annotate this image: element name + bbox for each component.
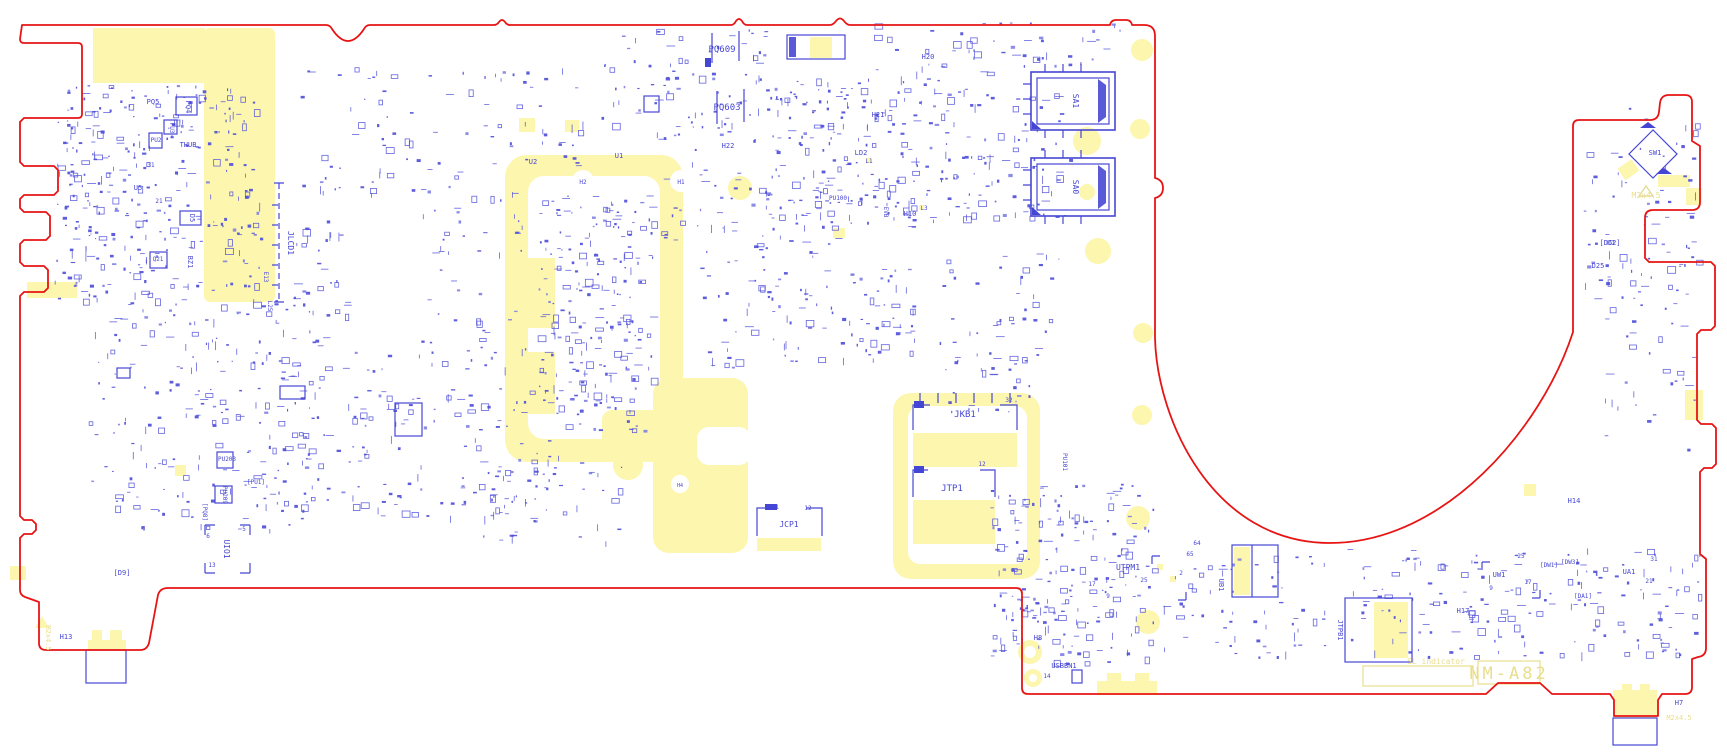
- silkscreen-mark: [822, 226, 825, 229]
- silkscreen-mark: [861, 89, 868, 95]
- ref-designator: SA0: [1071, 180, 1080, 195]
- silkscreen-mark: [527, 479, 531, 481]
- silkscreen-mark: [772, 176, 773, 179]
- silkscreen-mark: [420, 488, 422, 490]
- silkscreen-mark: [1444, 601, 1447, 604]
- silkscreen-mark: [911, 199, 915, 204]
- silkscreen-mark: [303, 229, 311, 236]
- silkscreen-mark: [1137, 595, 1141, 597]
- silkscreen-mark: [500, 199, 502, 202]
- silkscreen-mark: [1037, 621, 1039, 623]
- silkscreen-mark: [223, 469, 227, 470]
- silkscreen-mark: [1574, 641, 1575, 643]
- silkscreen-mark: [205, 319, 209, 320]
- silkscreen-mark: [1478, 629, 1486, 636]
- silkscreen-mark: [548, 440, 552, 441]
- silkscreen-mark: [1054, 65, 1056, 68]
- silkscreen-mark: [964, 217, 972, 223]
- silkscreen-mark: [191, 241, 194, 248]
- silkscreen-mark: [493, 496, 495, 498]
- silkscreen-mark: [860, 339, 863, 342]
- silkscreen-mark: [84, 174, 86, 176]
- silkscreen-mark: [101, 265, 104, 271]
- silkscreen-mark: [244, 164, 247, 166]
- silkscreen-mark: [890, 275, 893, 277]
- silkscreen-mark: [186, 204, 189, 206]
- silkscreen-mark: [553, 303, 555, 304]
- silkscreen-mark: [692, 73, 694, 75]
- silkscreen-mark: [1065, 600, 1068, 604]
- ref-designator: UIO1: [222, 539, 231, 558]
- silkscreen-mark: [766, 89, 770, 91]
- silkscreen-mark: [1063, 634, 1065, 636]
- silkscreen-mark: [1036, 354, 1039, 356]
- silkscreen-mark: [1008, 411, 1009, 412]
- ref-designator: H20: [922, 53, 935, 61]
- silkscreen-mark: [226, 284, 227, 287]
- silkscreen-mark: [998, 134, 1004, 141]
- silkscreen-mark: [868, 354, 871, 355]
- silkscreen-mark: [503, 71, 506, 74]
- ref-designator: E13: [262, 272, 269, 283]
- silkscreen-mark: [309, 407, 310, 408]
- silkscreen-mark: [1623, 630, 1626, 633]
- silkscreen-mark: [851, 274, 855, 276]
- silkscreen-mark: [258, 267, 260, 269]
- silkscreen-mark: [617, 293, 619, 295]
- silkscreen-mark: [236, 312, 240, 314]
- silkscreen-mark: [391, 75, 398, 79]
- silkscreen-mark: [628, 331, 630, 333]
- silkscreen-mark: [1121, 484, 1124, 486]
- silkscreen-mark: [809, 251, 812, 254]
- silkscreen-mark: [206, 394, 213, 398]
- silkscreen-mark: [884, 304, 886, 306]
- ref-designator: H8: [1034, 634, 1042, 642]
- silkscreen-mark: [1222, 565, 1226, 566]
- silkscreen-mark: [1013, 148, 1018, 152]
- silkscreen-mark: [618, 226, 619, 228]
- silkscreen-mark: [1096, 620, 1100, 622]
- silkscreen-mark: [797, 81, 799, 82]
- silkscreen-mark: [816, 303, 817, 306]
- silkscreen-mark: [1595, 620, 1599, 626]
- silkscreen-mark: [1521, 635, 1524, 638]
- ref-designator: 5: [242, 526, 246, 533]
- silkscreen-mark: [432, 351, 434, 353]
- silkscreen-mark: [245, 196, 249, 199]
- silkscreen-mark: [941, 170, 943, 173]
- silkscreen-mark: [72, 147, 74, 149]
- silkscreen-mark: [1043, 612, 1047, 614]
- silkscreen-mark: [727, 261, 730, 263]
- silkscreen-mark: [62, 272, 65, 274]
- silkscreen-mark: [978, 195, 981, 196]
- silkscreen-mark: [252, 233, 255, 234]
- silkscreen-mark: [223, 419, 228, 424]
- silkscreen-mark: [822, 149, 824, 152]
- silkscreen-mark: [563, 512, 567, 515]
- silkscreen-mark: [556, 397, 558, 400]
- ref-designator: 12: [978, 461, 986, 468]
- silkscreen-mark: [138, 264, 140, 265]
- ref-designator: PU203: [218, 456, 236, 463]
- silkscreen-mark: [1484, 604, 1488, 605]
- silkscreen-mark: [1144, 527, 1146, 530]
- silkscreen-mark: [926, 193, 927, 196]
- silkscreen-mark: [227, 88, 228, 91]
- silkscreen-mark: [1146, 566, 1150, 567]
- silkscreen-mark: [465, 132, 468, 135]
- silkscreen-mark: [997, 180, 999, 183]
- silkscreen-mark: [1532, 592, 1535, 593]
- silkscreen-mark: [1013, 386, 1017, 389]
- silkscreen-mark: [304, 493, 307, 495]
- silkscreen-mark: [724, 123, 726, 125]
- silkscreen-mark: [600, 402, 602, 404]
- ref-designator: JTP1: [941, 484, 963, 494]
- silkscreen-mark: [649, 218, 650, 221]
- silkscreen-mark: [327, 314, 331, 317]
- silkscreen-mark: [58, 122, 60, 123]
- silkscreen-mark: [198, 147, 201, 149]
- silkscreen-mark: [1653, 414, 1657, 415]
- silkscreen-mark: [600, 308, 604, 309]
- silkscreen-mark: [873, 195, 876, 198]
- silkscreen-mark: [664, 237, 668, 239]
- silkscreen-mark: [402, 511, 410, 517]
- silkscreen-mark: [1149, 640, 1153, 646]
- silkscreen-mark: [1112, 23, 1116, 25]
- silkscreen-mark: [1638, 291, 1641, 293]
- silkscreen-mark: [706, 251, 707, 253]
- silkscreen-mark: [93, 295, 96, 297]
- silkscreen-mark: [560, 231, 562, 233]
- silkscreen-mark: [1584, 210, 1587, 211]
- silkscreen-mark: [574, 395, 578, 397]
- silkscreen-mark: [594, 254, 598, 257]
- silkscreen-mark: [593, 428, 596, 431]
- ref-designator: 64: [1193, 540, 1201, 547]
- silkscreen-mark: [638, 109, 641, 112]
- silkscreen-mark: [282, 358, 289, 364]
- silkscreen-mark: [232, 361, 233, 362]
- silkscreen-mark: [596, 258, 600, 259]
- silkscreen-mark: [895, 49, 899, 51]
- silkscreen-mark: [1592, 229, 1596, 232]
- silkscreen-mark: [856, 162, 858, 163]
- silkscreen-mark: [984, 138, 986, 141]
- silkscreen-mark: [752, 330, 759, 335]
- silkscreen-mark: [1593, 176, 1597, 179]
- silkscreen-mark: [132, 324, 136, 328]
- silkscreen-mark: [582, 489, 585, 490]
- silkscreen-mark: [274, 303, 278, 305]
- ref-designator: H22: [722, 142, 735, 150]
- silkscreen-mark: [516, 401, 517, 404]
- silkscreen-mark: [1238, 558, 1242, 560]
- silkscreen-mark: [396, 404, 399, 409]
- silkscreen-mark: [618, 324, 622, 326]
- silkscreen-mark: [771, 298, 773, 301]
- silkscreen-mark: [1032, 503, 1034, 506]
- silkscreen-mark: [1072, 646, 1073, 647]
- silkscreen-mark: [607, 407, 611, 409]
- silkscreen-mark: [1662, 243, 1665, 245]
- silkscreen-mark: [1000, 594, 1002, 597]
- silkscreen-mark: [802, 103, 806, 105]
- silkscreen-mark: [130, 302, 134, 304]
- silkscreen-mark: [593, 226, 595, 227]
- silkscreen-mark: [345, 314, 348, 320]
- silkscreen-mark: [278, 470, 279, 471]
- silkscreen-mark: [58, 166, 66, 170]
- silkscreen-mark: [602, 490, 604, 491]
- silkscreen-mark: [278, 492, 279, 495]
- silkscreen-mark: [190, 126, 192, 127]
- silkscreen-mark: [98, 382, 100, 384]
- silkscreen-mark: [812, 112, 814, 114]
- silkscreen-mark: [805, 298, 808, 300]
- ref-designator: JCP1: [779, 520, 798, 529]
- silkscreen-mark: [1688, 248, 1690, 249]
- silkscreen-mark: [281, 510, 284, 512]
- silkscreen-mark: [112, 387, 116, 388]
- silkscreen-mark: [1281, 587, 1283, 588]
- silkscreen-mark: [572, 261, 575, 264]
- silkscreen-mark: [858, 175, 859, 177]
- silkscreen-mark: [367, 369, 370, 370]
- silkscreen-mark: [524, 401, 526, 404]
- silkscreen-mark: [1400, 620, 1401, 623]
- silkscreen-mark: [559, 485, 563, 486]
- silkscreen-mark: [928, 64, 929, 66]
- silkscreen-mark: [131, 443, 134, 444]
- silkscreen-mark: [247, 452, 249, 453]
- silkscreen-mark: [911, 325, 913, 327]
- silkscreen-mark: [933, 105, 936, 107]
- silkscreen-mark: [1069, 64, 1073, 67]
- silkscreen-mark: [1126, 552, 1133, 559]
- silkscreen-mark: [695, 149, 697, 151]
- ref-designator: H17: [1457, 607, 1470, 615]
- silkscreen-mark: [902, 142, 908, 147]
- silkscreen-mark: [672, 214, 674, 217]
- silkscreen-mark: [113, 238, 116, 241]
- ref-designator: 31: [147, 162, 155, 169]
- silkscreen-mark: [118, 424, 120, 426]
- ref-designator: 9: [1106, 593, 1110, 600]
- silkscreen-mark: [151, 270, 155, 272]
- silkscreen-mark: [615, 88, 617, 91]
- silkscreen-mark: [360, 186, 364, 188]
- silkscreen-mark: [1069, 589, 1071, 591]
- silkscreen-mark: [71, 164, 74, 165]
- silkscreen-mark: [213, 406, 216, 408]
- silkscreen-mark: [575, 162, 579, 164]
- silkscreen-mark: [513, 73, 515, 76]
- silkscreen-mark: [1230, 645, 1232, 647]
- silkscreen-mark: [551, 201, 554, 202]
- silkscreen-mark: [110, 110, 112, 113]
- silkscreen-mark: [90, 233, 91, 234]
- silkscreen-mark: [337, 450, 341, 452]
- silkscreen-mark: [1033, 302, 1039, 307]
- silkscreen-mark: [113, 432, 115, 433]
- silkscreen-mark: [99, 107, 101, 110]
- silkscreen-mark: [1584, 603, 1586, 606]
- silkscreen-mark: [977, 104, 981, 106]
- silkscreen-mark: [1494, 640, 1495, 643]
- silkscreen-mark: [599, 429, 603, 431]
- silkscreen-mark: [898, 91, 900, 94]
- silkscreen-mark: [540, 241, 542, 243]
- silkscreen-mark: [627, 48, 630, 49]
- silkscreen-mark: [1001, 52, 1005, 53]
- silkscreen-mark: [1059, 521, 1063, 525]
- silkscreen-mark: [123, 179, 126, 182]
- silkscreen-mark: [111, 350, 115, 354]
- silkscreen-mark: [596, 223, 598, 225]
- silkscreen-mark: [364, 454, 367, 456]
- silkscreen-mark: [79, 142, 83, 144]
- silkscreen-mark: [155, 391, 159, 394]
- silkscreen-mark: [1075, 527, 1077, 528]
- silkscreen-mark: [1635, 404, 1636, 406]
- silkscreen-mark: [1033, 598, 1036, 601]
- silkscreen-mark: [994, 604, 996, 607]
- silkscreen-mark: [841, 116, 844, 119]
- silkscreen-mark: [862, 106, 866, 108]
- silkscreen-mark: [1631, 281, 1636, 286]
- ref-designator: UW1: [1493, 571, 1506, 579]
- silkscreen-mark: [875, 35, 883, 40]
- silkscreen-mark: [1606, 264, 1609, 267]
- silkscreen-mark: [1068, 651, 1072, 654]
- silkscreen-mark: [1054, 619, 1057, 621]
- silkscreen-mark: [551, 354, 554, 357]
- ref-designator: UTPM1: [1116, 563, 1140, 572]
- silkscreen-mark: [1153, 621, 1154, 624]
- silkscreen-mark: [828, 243, 831, 245]
- silkscreen-mark: [967, 42, 972, 49]
- silkscreen-mark: [902, 156, 903, 158]
- silkscreen-mark: [1675, 380, 1678, 381]
- silkscreen-mark: [603, 365, 605, 367]
- silkscreen-mark: [294, 297, 296, 299]
- silkscreen-mark: [170, 389, 172, 392]
- silkscreen-mark: [510, 142, 512, 145]
- silkscreen-mark: [913, 219, 917, 221]
- silkscreen-mark: [1537, 612, 1543, 617]
- silkscreen-mark: [327, 499, 329, 501]
- silkscreen-mark: [191, 516, 194, 518]
- silkscreen-mark: [1692, 158, 1696, 160]
- silkscreen-mark: [320, 181, 324, 183]
- silkscreen-mark: [1626, 335, 1628, 337]
- silkscreen-mark: [1596, 625, 1599, 627]
- silkscreen-mark: [525, 159, 528, 161]
- silkscreen-mark: [1013, 630, 1017, 631]
- silkscreen-mark: [806, 102, 807, 104]
- silkscreen-mark: [572, 369, 576, 370]
- silkscreen-mark: [844, 157, 847, 161]
- silkscreen-mark: [1017, 395, 1021, 397]
- silkscreen-mark: [749, 29, 750, 31]
- silkscreen-mark: [762, 235, 763, 237]
- label-frame: [1363, 666, 1473, 686]
- silkscreen-mark: [745, 74, 747, 76]
- silkscreen-mark: [1082, 485, 1085, 487]
- silkscreen-mark: [226, 344, 229, 346]
- silkscreen-mark: [155, 299, 160, 306]
- silkscreen-mark: [1697, 581, 1699, 582]
- silkscreen-mark: [1418, 649, 1419, 651]
- silkscreen-mark: [652, 256, 653, 259]
- silkscreen-mark: [1677, 589, 1679, 591]
- silkscreen-mark: [484, 125, 488, 126]
- silkscreen-mark: [459, 220, 462, 223]
- silkscreen-mark: [1409, 593, 1410, 596]
- silkscreen-mark: [905, 89, 911, 93]
- silkscreen-mark: [569, 362, 573, 364]
- silkscreen-mark: [1009, 495, 1011, 497]
- silkscreen-mark: [470, 404, 474, 407]
- silkscreen-mark: [994, 216, 1000, 221]
- silkscreen-mark: [511, 501, 513, 503]
- silkscreen-mark: [851, 200, 853, 202]
- silkscreen-mark: [685, 60, 688, 63]
- silkscreen-mark: [1044, 606, 1048, 608]
- silkscreen-mark: [892, 123, 895, 126]
- silkscreen-mark: [731, 198, 733, 200]
- silkscreen-mark: [97, 207, 104, 214]
- silkscreen-mark: [611, 328, 612, 331]
- silkscreen-mark: [579, 423, 581, 425]
- silkscreen-mark: [319, 387, 321, 388]
- silkscreen-mark: [816, 187, 819, 188]
- silkscreen-mark: [815, 196, 818, 198]
- silkscreen-mark: [544, 133, 548, 136]
- silkscreen-mark: [74, 275, 81, 279]
- silkscreen-mark: [754, 139, 756, 140]
- silkscreen-mark: [68, 277, 72, 280]
- silkscreen-mark: [126, 213, 128, 214]
- silkscreen-mark: [1648, 258, 1650, 260]
- silkscreen-mark: [87, 200, 89, 201]
- silkscreen-mark: [640, 202, 644, 203]
- silkscreen-mark: [1233, 591, 1234, 593]
- silkscreen-mark: [175, 171, 178, 174]
- silkscreen-mark: [598, 337, 602, 340]
- silkscreen-mark: [557, 215, 561, 216]
- silkscreen-mark: [893, 318, 895, 319]
- ref-designator: PU2: [151, 137, 162, 144]
- silkscreen-mark: [112, 471, 114, 472]
- silkscreen-mark: [1605, 435, 1609, 436]
- silkscreen-mark: [335, 188, 336, 190]
- silkscreen-mark: [462, 504, 467, 506]
- silkscreen-mark: [803, 132, 807, 135]
- silkscreen-mark: [678, 134, 680, 136]
- silkscreen-mark: [1501, 610, 1507, 614]
- silkscreen-mark: [1109, 504, 1114, 511]
- silkscreen-mark: [523, 81, 527, 84]
- silkscreen-mark: [469, 90, 473, 97]
- silkscreen-mark: [1524, 655, 1527, 656]
- silkscreen-mark: [109, 185, 113, 186]
- silkscreen-mark: [412, 189, 416, 192]
